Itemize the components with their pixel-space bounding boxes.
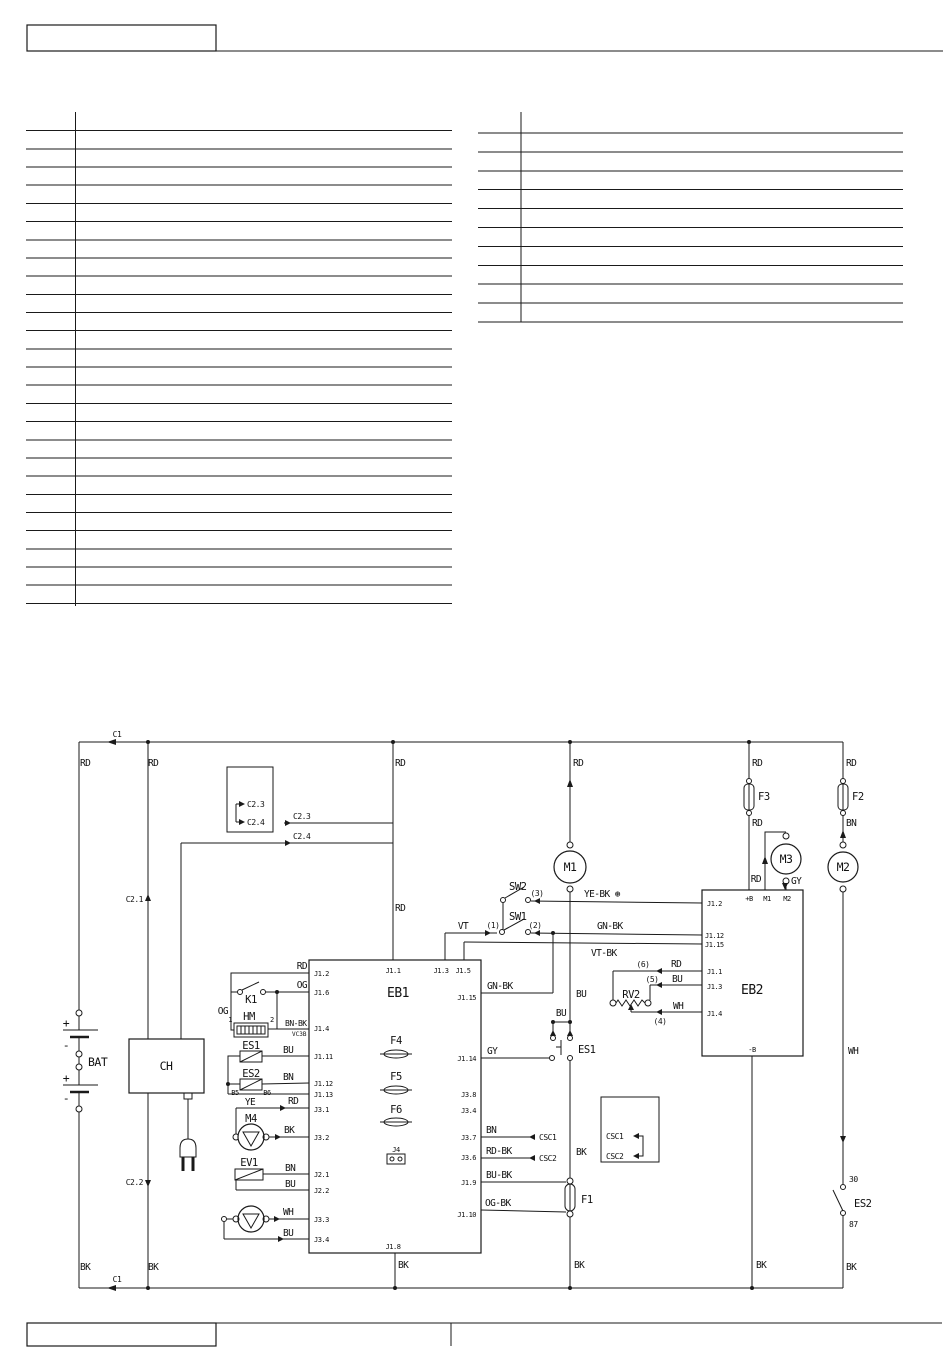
wires-to-eb2: YE-BK ⊛ GN-BK VT-BK <box>464 889 702 993</box>
wire-rd-charger: RD <box>148 758 159 769</box>
eb1-pin-j1-8: J1.8 <box>386 1243 401 1251</box>
eb1-pin-j3-3: J3.3 <box>314 1216 329 1224</box>
eb2-pin-j1-1: J1.1 <box>707 968 722 976</box>
wire-rd-k1: RD <box>297 961 308 972</box>
c23-wire-label: C2.3 <box>293 812 311 821</box>
eb1-pin-j1-15: J1.15 <box>457 994 476 1002</box>
board-eb1: EB1 J1.1 J1.3 J1.5 J1.2 J1.6 J1.4 J1.11 … <box>309 960 481 1288</box>
contact-30: 30 <box>849 1175 858 1184</box>
csc2-wire-label: CSC2 <box>539 1154 557 1163</box>
page-footer <box>27 1323 942 1346</box>
rv2-label: RV2 <box>622 989 640 1001</box>
battery-plus-2: + <box>63 1071 70 1085</box>
footer-box <box>27 1323 216 1346</box>
wire-rd-a: RD <box>395 758 406 769</box>
eb1-pin-j1-2: J1.2 <box>314 970 329 978</box>
eb1-pin-j3-1: J3.1 <box>314 1106 329 1114</box>
wire-rd-m1: RD <box>573 758 584 769</box>
wire-rd-f3-bot: RD <box>752 818 763 829</box>
connector-c23-c24: C2.3 C2.4 C2.3 C2.4 <box>181 767 393 846</box>
wire-gy-m3: GY <box>791 876 802 887</box>
contact-1: (1) <box>487 921 500 930</box>
relay-k1-label: K1 <box>245 994 257 1006</box>
wire-bk-battery: BK <box>80 1262 91 1273</box>
parts-tables <box>26 112 903 606</box>
contact-3: (3) <box>531 889 544 898</box>
wire-bu-m1: BU <box>576 989 587 1000</box>
pump-m4-label: M4 <box>245 1113 257 1125</box>
connector-c21: C2.1 <box>126 895 144 904</box>
wire-bk-eb2: BK <box>756 1260 767 1271</box>
fuse-f3-label: F3 <box>758 791 770 803</box>
contact-87: 87 <box>849 1220 858 1229</box>
switch-sw1-label: SW1 <box>509 911 527 923</box>
contact-4: (4) <box>654 1017 667 1026</box>
wire-bn-bk-hm: BN-BK <box>285 1019 307 1028</box>
eb1-pin-j1-11: J1.11 <box>314 1053 333 1061</box>
fuse-f4-label: F4 <box>390 1035 402 1047</box>
eb1-pin-j3-7: J3.7 <box>461 1134 476 1142</box>
wire-bk-f1: BK <box>576 1147 587 1158</box>
eb1-pin-j1-1: J1.1 <box>386 967 401 975</box>
wire-bu-es1: BU <box>283 1045 294 1056</box>
valve-ev1-label: EV1 <box>240 1157 258 1169</box>
wire-bu-pump: BU <box>283 1228 294 1239</box>
contact-5: (5) <box>646 975 659 984</box>
wire-bk-charger: BK <box>148 1262 159 1273</box>
c1-top-arrow-icon <box>107 739 116 745</box>
wire-bu-bridge: BU <box>556 1008 567 1019</box>
c22-arrow-icon <box>145 1180 151 1187</box>
csc-legend-box: CSC1 CSC2 <box>601 1097 659 1162</box>
wire-wh-pump: WH <box>283 1207 294 1218</box>
eb1-pin-j1-3: J1.3 <box>434 967 449 975</box>
c24-wire-label: C2.4 <box>293 832 311 841</box>
connector-c22: C2.2 <box>126 1178 144 1187</box>
hm-terminal-1: 1 <box>228 1016 232 1024</box>
charger-ch: C2.1 C2.2 RD BK CH <box>126 742 204 1288</box>
switch-es2-label: ES2 <box>854 1198 872 1210</box>
switch-sw2-label: SW2 <box>509 881 527 893</box>
hourmeter-hm-label: HM <box>243 1011 255 1023</box>
c1-bottom-arrow-icon <box>107 1285 116 1291</box>
es1-left-label: ES1 <box>242 1040 260 1052</box>
fuse-f5-label: F5 <box>390 1071 402 1083</box>
wire-rd-eb1-feed: RD RD <box>393 742 406 960</box>
c21-arrow-icon <box>145 894 151 901</box>
battery-plus-1: + <box>63 1016 70 1030</box>
wire-vt: VT <box>458 921 469 932</box>
wire-bn-ev1: BN <box>285 1163 296 1174</box>
relay-k1-hourmeter-hm: RD OG K1 OG HM 1 2 BN-BK VC3B <box>218 961 309 1038</box>
wire-bu-ev1: BU <box>285 1179 296 1190</box>
contact-2: (2) <box>529 921 542 930</box>
eb1-pin-j3-4b: J3.4 <box>461 1107 476 1115</box>
csc2-legend: CSC2 <box>606 1152 624 1161</box>
fuse-f6-label: F6 <box>390 1104 402 1116</box>
eb1-pin-j1-4: J1.4 <box>314 1025 329 1033</box>
eb1-pin-j1-10: J1.10 <box>457 1211 476 1219</box>
motor-m1: M1 RD BU <box>554 742 587 1022</box>
motor-m1-label: M1 <box>564 860 577 874</box>
eb2-pin-minus-b: -B <box>748 1046 756 1054</box>
c24-inside: C2.4 <box>247 818 265 827</box>
csc-wires: BN CSC1 RD-BK CSC2 BU-BK OG-BK <box>481 1125 566 1212</box>
wire-bn-es2: BN <box>283 1072 294 1083</box>
wire-wh-rv2: WH <box>673 1001 684 1012</box>
terminal-b5: B5 <box>231 1089 239 1097</box>
motor-m3-label: M3 <box>780 852 793 866</box>
wire-bk-eb1: BK <box>398 1260 409 1271</box>
eb2-pin-m1: M1 <box>763 895 771 903</box>
fuse-f3: RD F3 RD <box>744 742 770 890</box>
wire-wh-m2: WH <box>848 1046 859 1057</box>
wire-rd-m3: RD <box>751 874 762 885</box>
contact-6: (6) <box>637 960 650 969</box>
eb1-pin-j2-2: J2.2 <box>314 1187 329 1195</box>
wire-og-k1: OG <box>297 980 308 991</box>
wire-rd-b: RD <box>395 903 406 914</box>
wire-bn-f2: BN <box>846 818 857 829</box>
valve-ev1: EV1 BN BU <box>235 1157 309 1190</box>
eb2-pin-m2: M2 <box>783 895 791 903</box>
motor-m3: M3 RD GY <box>751 832 802 890</box>
eb2-pin-j1-4: J1.4 <box>707 1010 722 1018</box>
wire-bu-bk: BU-BK <box>486 1170 512 1181</box>
wire-gy-line: GY <box>487 1046 498 1057</box>
wire-og-hm: OG <box>218 1006 229 1017</box>
wire-gn-bk: GN-BK <box>597 921 623 932</box>
schematic: C1 C1 + - + - BAT RD BK C2.1 C2.2 <box>63 730 872 1291</box>
terminal-b6: B6 <box>263 1089 271 1097</box>
csc1-legend: CSC1 <box>606 1132 624 1141</box>
csc1-wire-label: CSC1 <box>539 1133 557 1142</box>
board-eb2-label: EB2 <box>741 983 763 998</box>
eb1-pin-j1-14: J1.14 <box>457 1055 476 1063</box>
wire-vc3b: VC3B <box>292 1031 307 1038</box>
wire-rd-rv2: RD <box>671 959 682 970</box>
page-header <box>27 25 943 51</box>
wire-vt-bk: VT-BK <box>591 948 617 959</box>
es2-left-label: ES2 <box>242 1068 260 1080</box>
switch-sw1-sw2: SW2 SW1 (3) (1) (2) VT <box>445 881 543 960</box>
charger-label: CH <box>160 1059 173 1073</box>
fuse-f1-label: F1 <box>581 1194 593 1206</box>
eb1-pin-j3-6: J3.6 <box>461 1154 476 1162</box>
wire-bk-f1-bot: BK <box>574 1260 585 1271</box>
eb1-pin-j1-9: J1.9 <box>461 1179 476 1187</box>
eb1-pin-j3-2: J3.2 <box>314 1134 329 1142</box>
battery-minus-1: - <box>63 1038 69 1052</box>
fuse-f1: F1 BK <box>565 1178 593 1288</box>
wire-rd-f3-top: RD <box>752 758 763 769</box>
eb1-pin-j1-12: J1.12 <box>314 1080 333 1088</box>
eb2-pin-j1-12: J1.12 <box>705 932 724 940</box>
wire-rd-battery: RD <box>80 758 91 769</box>
header-title-box <box>27 25 216 51</box>
eb1-pin-j1-6: J1.6 <box>314 989 329 997</box>
eb2-pin-j1-3: J1.3 <box>707 983 722 991</box>
c23-inside: C2.3 <box>247 800 265 809</box>
fuse-f2-motor-m2: RD F2 BN M2 WH 30 ES2 87 BK <box>828 742 872 1288</box>
battery-bat: + - + - BAT RD BK <box>63 742 108 1288</box>
pump-bottom: WH BU <box>222 1206 310 1242</box>
hm-terminal-2: 2 <box>270 1016 274 1024</box>
mains-plug-icon <box>180 1093 196 1171</box>
motor-m2-label: M2 <box>837 860 850 874</box>
battery-minus-2: - <box>63 1091 69 1105</box>
board-eb1-label: EB1 <box>387 986 409 1001</box>
eb2-pin-plus-b: +B <box>745 895 753 903</box>
wiring-diagram-svg: C1 C1 + - + - BAT RD BK C2.1 C2.2 <box>0 0 950 1360</box>
potentiometer-rv2: RV2 (6) RD (5) BU WH (4) <box>610 959 702 1026</box>
wire-bk-m4: BK <box>284 1125 295 1136</box>
wire-rd-bk-csc2: RD-BK <box>486 1146 512 1157</box>
wire-bn-csc1: BN <box>486 1125 497 1136</box>
connector-c1-top: C1 <box>113 730 122 739</box>
eb1-pin-j3-4: J3.4 <box>314 1236 329 1244</box>
wire-ye: YE <box>245 1097 256 1108</box>
battery-label: BAT <box>88 1055 108 1069</box>
board-eb2: EB2 +B M1 M2 J1.2 J1.12 J1.15 J1.1 J1.3 … <box>702 890 803 1288</box>
wire-gn-bk-eb1: GN-BK <box>487 981 513 992</box>
wire-rd-m4: RD <box>288 1096 299 1107</box>
fuse-f2-label: F2 <box>852 791 864 803</box>
eb1-pin-j2-1: J2.1 <box>314 1171 329 1179</box>
wire-og-bk: OG-BK <box>485 1198 511 1209</box>
switch-es1-mid-label: ES1 <box>578 1044 596 1056</box>
eb2-pin-j1-2: J1.2 <box>707 900 722 908</box>
wire-bu-rv2: BU <box>672 974 683 985</box>
eb1-pin-j1-5: J1.5 <box>456 967 471 975</box>
eb1-pin-j3-8: J3.8 <box>461 1091 476 1099</box>
wire-bk-es2: BK <box>846 1262 857 1273</box>
schematic-page: C1 C1 + - + - BAT RD BK C2.1 C2.2 <box>0 0 950 1360</box>
eb1-pin-j1-13: J1.13 <box>314 1091 333 1099</box>
eb2-pin-j1-15: J1.15 <box>705 941 724 949</box>
connector-c1-bottom: C1 <box>113 1275 122 1284</box>
wire-ye-bk: YE-BK ⊛ <box>584 889 621 900</box>
wire-rd-f2: RD <box>846 758 857 769</box>
j4-label: J4 <box>392 1146 400 1154</box>
